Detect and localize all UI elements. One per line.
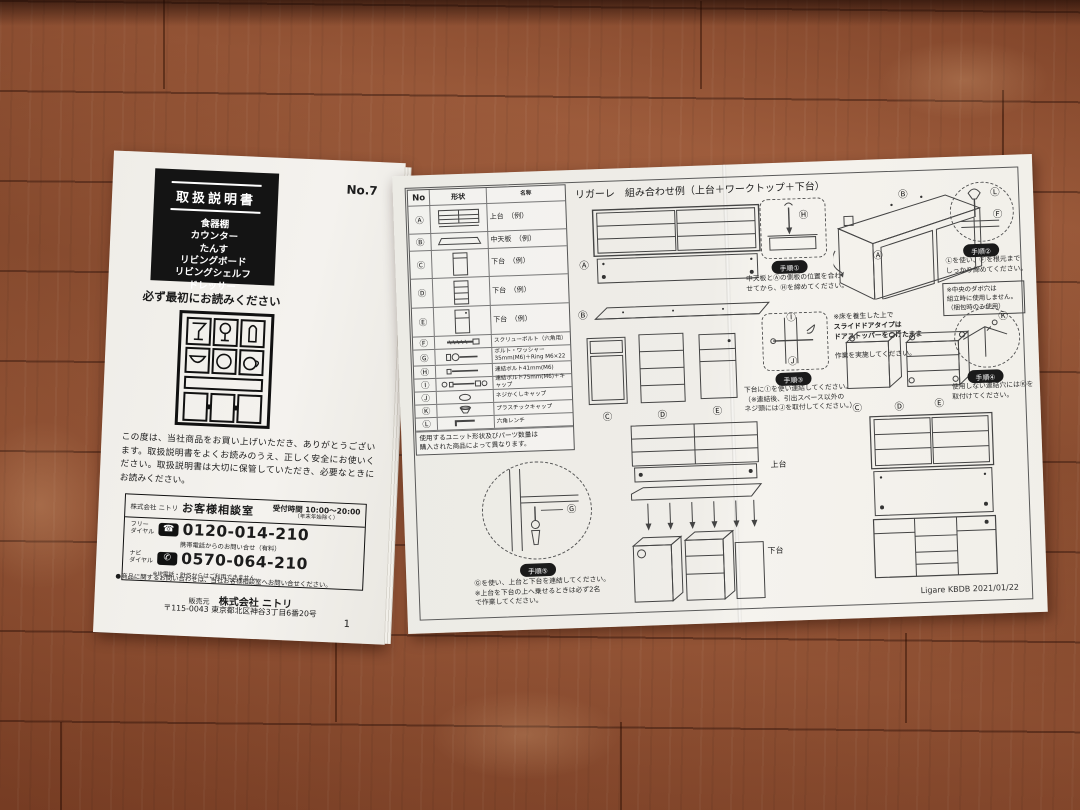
instruction-booklet: No.7 取扱説明書 食器棚 カウンター たんす リビングボード リビングシェル… [93,150,406,644]
row-name: ボルト・ワッシャー 35mm(M6)＋Ring M6×22 [492,345,571,363]
label-a-iso: Ⓐ [873,247,883,261]
lower-unit-e-front-view [698,332,738,399]
shape-screw-cover-cap-icon [437,390,494,404]
row-no: Ⓛ [416,418,439,431]
shape-upper-unit-icon [431,204,488,233]
lower-unit-c-front-view [586,336,628,405]
label-d-iso: Ⓓ [894,399,904,413]
shape-top-board-icon [432,232,489,250]
label-c: Ⓒ [602,409,612,423]
parts-table-note: 使用するユニット形状及びパーツ数量は 購入された商品によって異なります。 [416,426,574,455]
upper-unit-front-view [591,204,762,286]
row-name: 中天板 （例） [488,229,567,248]
floor-plank-seam [60,722,62,810]
label-i: Ⓘ [786,309,796,323]
row-no: Ⓚ [415,405,438,418]
label-h: Ⓗ [799,207,809,221]
intro-paragraph: この度は、当社商品をお買い上げいただき、ありがとうございます。取扱説明書をよくお… [119,431,375,497]
row-name: 上台 （例） [487,201,566,231]
row-no: Ⓗ [414,366,437,379]
step4-text: 使用しない連結穴にはⓀを 取付けてください。 [952,380,1043,402]
label-l: Ⓛ [990,184,1000,198]
shape-hex-wrench-icon [438,416,495,430]
title-box: 取扱説明書 食器棚 カウンター たんす リビングボード リビングシェルフ ドレッ… [150,168,279,285]
free-dial-label: フリー ダイヤル [130,520,155,535]
label-b-iso: Ⓑ [898,186,908,200]
shape-screw-bolt-icon [435,335,492,349]
shape-lower-unit-e-icon [434,306,491,336]
label-k: Ⓚ [998,308,1008,322]
row-no: Ⓒ [410,251,433,279]
header-shape: 形状 [430,188,487,205]
wood-grain-highlight [0,420,110,590]
step5-badge: 手順⑤ [520,563,556,577]
row-name: 下台 （例） [490,274,569,305]
wood-grain-highlight [430,690,620,780]
row-no: Ⓘ [414,379,437,392]
label-a: Ⓐ [579,258,589,272]
page-number: 1 [343,619,350,630]
booklet-title: 取扱説明書 [170,181,261,214]
step1-badge: 手順① [771,260,807,274]
row-no: Ⓐ [408,206,431,234]
row-no: Ⓙ [415,392,438,405]
shape-lower-unit-c-icon [432,249,489,278]
header-name: 名称 [487,185,566,203]
upper-unit-label: 上台 [770,459,786,471]
lower-unit-d-front-view [638,332,686,404]
label-j: Ⓙ [788,353,798,367]
finished-unit-front-view [869,411,999,583]
service-hours: 受付時間 10:00～20:00 （年末年始除く） [272,504,360,523]
label-f: Ⓕ [993,206,1003,220]
navi-dial-icon: ✆ [157,551,178,565]
step1-detail-inset: Ⓗ [759,197,827,259]
row-no: Ⓕ [413,337,436,350]
lower-unit-label: 下台 [767,545,783,557]
cupboard-illustration [174,309,275,429]
shape-connect-bolt-75-icon [437,377,494,391]
photo-top-shadow [0,0,1080,26]
doc-number: No.7 [346,183,378,198]
service-dept: お客様相談室 [182,500,255,519]
step2-text: Ⓛを使い、Ⓕを根元まで しっかり締めてください。 [945,254,1038,276]
floor-plank-seam [620,722,622,810]
step2-detail-inset: Ⓛ Ⓕ [949,181,1015,243]
shape-lower-unit-d-icon [433,277,490,307]
label-d: Ⓓ [657,407,667,421]
step5-detail-inset: Ⓖ [480,460,593,562]
row-name: 下台 （例） [491,303,570,334]
label-e-iso: Ⓔ [934,395,944,409]
product-list: 食器棚 カウンター たんす リビングボード リビングシェルフ ドレッサー [150,216,277,295]
row-no: Ⓑ [409,234,432,251]
row-name: 下台 （例） [489,246,568,276]
free-dial-icon: ☎ [158,522,179,536]
assembly-example-sheet: No 形状 名称 Ⓐ 上台 （例） Ⓑ 中天板 （例） Ⓒ 下 [392,154,1048,634]
header-no: No [408,190,431,206]
floor-plank-seam [335,633,337,722]
floor-plank-seam [905,633,907,723]
photo-of-instruction-manuals: No.7 取扱説明書 食器棚 カウンター たんす リビングボード リビングシェル… [0,0,1080,810]
step4-detail-inset: Ⓚ [953,307,1021,369]
parts-table: No 形状 名称 Ⓐ 上台 （例） Ⓑ 中天板 （例） Ⓒ 下 [407,184,575,456]
row-no: Ⓖ [413,350,436,366]
shape-connect-bolt-41-icon [436,364,493,378]
shape-plastic-cap-icon [438,403,495,417]
row-no: Ⓔ [412,308,435,337]
label-c-iso: Ⓒ [852,400,862,414]
shape-bolt-washer-icon [436,348,493,365]
label-e: Ⓔ [712,403,722,417]
row-no: Ⓓ [411,279,434,308]
company-name: 株式会社 ニトリ [130,501,178,513]
label-g: Ⓖ [567,501,577,515]
navi-dial-label: ナビ ダイヤル [129,549,154,564]
label-b: Ⓑ [578,308,588,322]
wood-grain-highlight [880,40,1050,120]
step3-detail-inset: Ⓘ Ⓙ [761,311,829,371]
exploded-assembly-view [625,419,771,608]
floor-note-lead: ※床を養生した上で [833,311,893,321]
